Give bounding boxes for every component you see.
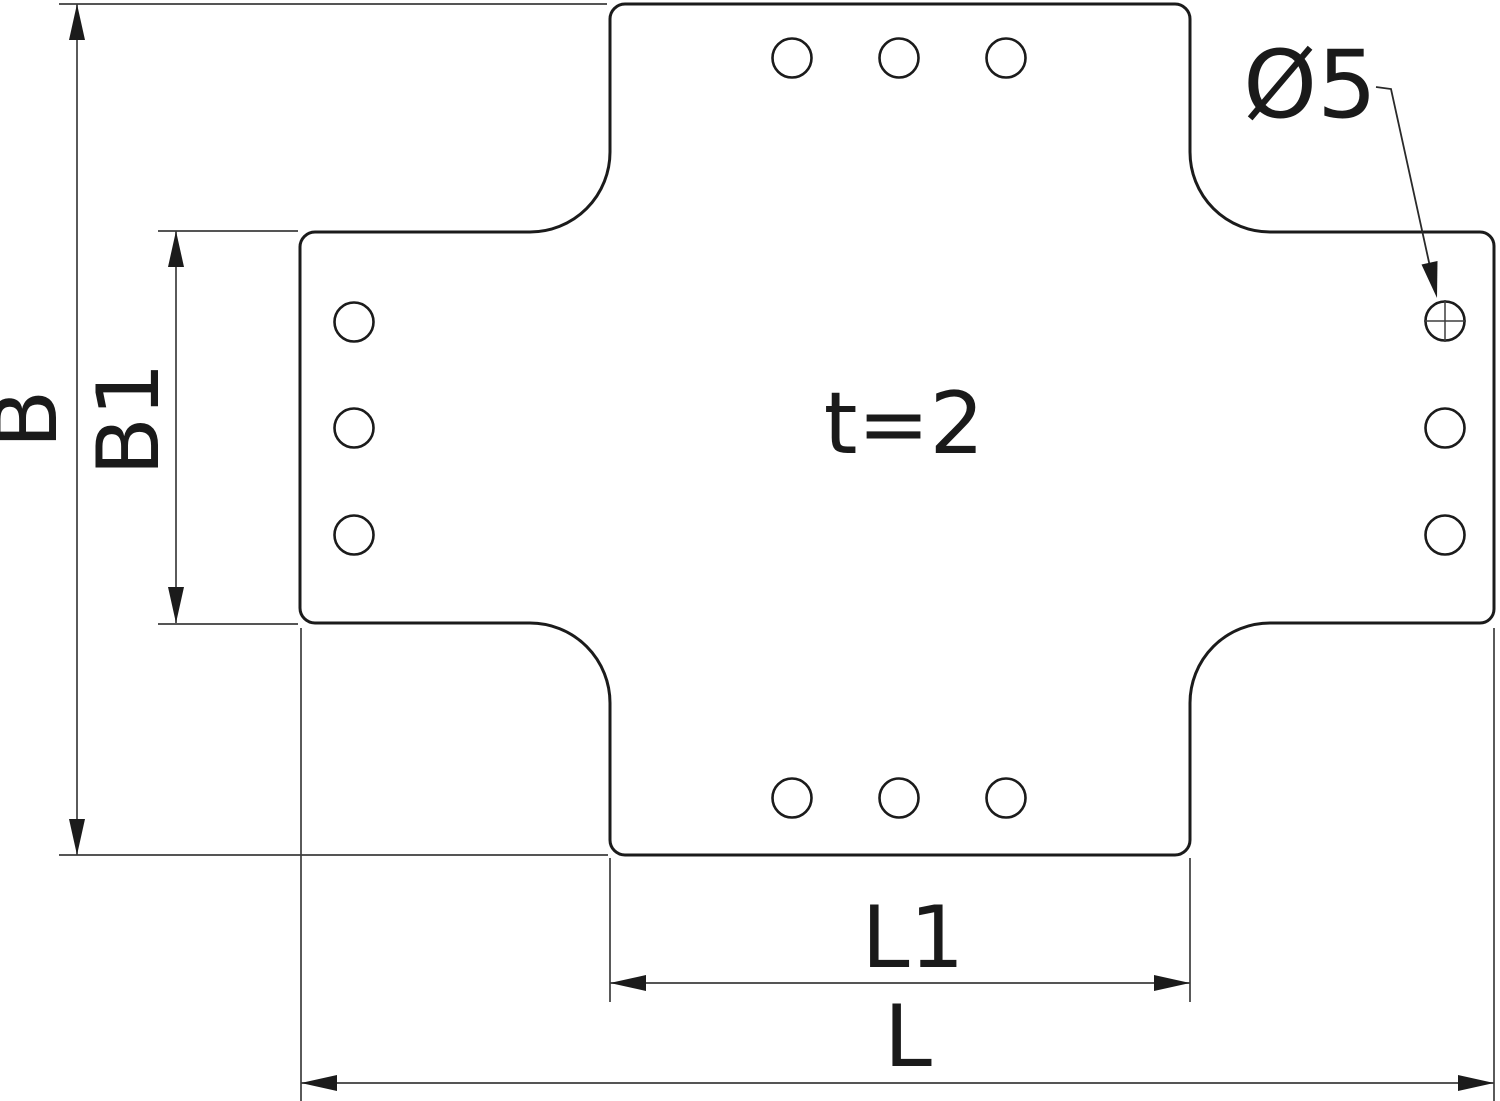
hole-bottom-3: [987, 779, 1026, 818]
leader-arrowhead: [1422, 261, 1438, 298]
leader-line: [1376, 87, 1434, 285]
dimension-lines: [77, 4, 1494, 1083]
hole-bottom-1: [773, 779, 812, 818]
arrowhead-b-up: [69, 4, 85, 40]
drawing-svg: [0, 0, 1500, 1101]
hole-left-2: [335, 409, 374, 448]
hole-top-3: [987, 39, 1026, 78]
hole-left-1: [335, 303, 374, 342]
label-thickness: t=2: [824, 381, 985, 467]
hole-bottom-2: [880, 779, 919, 818]
arrowhead-b1-down: [168, 587, 184, 623]
arrowhead-l-left: [301, 1075, 337, 1091]
arrowhead-l-right: [1458, 1075, 1494, 1091]
arrowhead-b1-up: [168, 231, 184, 267]
label-dimension-l: L: [884, 994, 932, 1080]
label-dimension-l1: L1: [862, 895, 965, 981]
hole-right-2: [1426, 409, 1465, 448]
extension-lines: [59, 4, 1494, 1101]
hole-top-1: [773, 39, 812, 78]
hole-top-2: [880, 39, 919, 78]
arrowheads: [69, 4, 1494, 1091]
label-dimension-b1: B1: [86, 362, 172, 476]
label-hole-diameter: Ø5: [1243, 39, 1377, 133]
dia-leader: [1376, 87, 1438, 298]
arrowhead-l1-left: [610, 975, 646, 991]
arrowhead-l1-right: [1154, 975, 1190, 991]
hole-right-3: [1426, 516, 1465, 555]
arrowhead-b-down: [69, 819, 85, 855]
hole-left-3: [335, 516, 374, 555]
label-dimension-b: B: [0, 390, 70, 449]
drawing-canvas: B B1 t=2 Ø5 L1 L: [0, 0, 1500, 1101]
